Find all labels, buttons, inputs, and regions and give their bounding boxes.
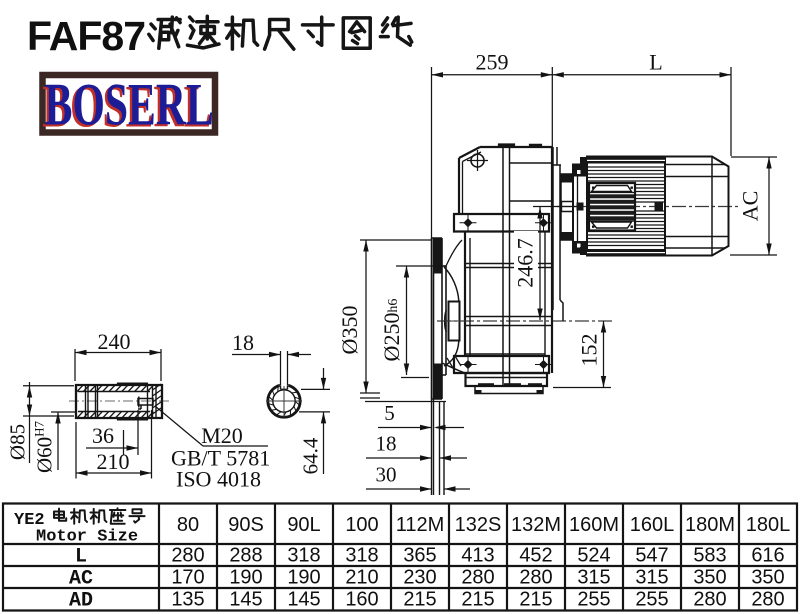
- svg-text:210: 210: [97, 449, 130, 474]
- svg-text:215: 215: [519, 589, 552, 611]
- svg-text:452: 452: [519, 545, 552, 567]
- svg-text:583: 583: [693, 545, 726, 567]
- svg-text:288: 288: [229, 545, 262, 567]
- svg-text:100: 100: [345, 514, 378, 536]
- svg-text:280: 280: [171, 545, 204, 567]
- svg-text:M20: M20: [201, 423, 243, 448]
- svg-text:132S: 132S: [455, 514, 502, 536]
- svg-text:30: 30: [376, 463, 397, 487]
- svg-text:210: 210: [345, 567, 378, 589]
- svg-text:616: 616: [751, 545, 784, 567]
- svg-text:112M: 112M: [396, 514, 445, 536]
- svg-text:318: 318: [345, 545, 378, 567]
- svg-text:160: 160: [345, 589, 378, 611]
- svg-text:315: 315: [577, 567, 610, 589]
- svg-text:190: 190: [229, 567, 262, 589]
- svg-text:Ø350: Ø350: [337, 306, 362, 355]
- svg-text:132M: 132M: [511, 514, 561, 536]
- svg-text:190: 190: [287, 567, 320, 589]
- svg-text:180L: 180L: [746, 514, 791, 536]
- svg-text:365: 365: [403, 545, 436, 567]
- svg-text:215: 215: [403, 589, 436, 611]
- svg-text:90L: 90L: [287, 514, 320, 536]
- svg-text:FAF87: FAF87: [27, 13, 145, 59]
- svg-text:64.4: 64.4: [298, 437, 322, 474]
- svg-text:215: 215: [461, 589, 494, 611]
- svg-text:160L: 160L: [630, 514, 675, 536]
- svg-text:18: 18: [376, 432, 397, 456]
- svg-text:AD: AD: [69, 590, 93, 613]
- svg-text:160M: 160M: [569, 514, 619, 536]
- svg-text:BOSERL: BOSERL: [45, 72, 214, 138]
- svg-text:180M: 180M: [685, 514, 735, 536]
- svg-text:18: 18: [232, 330, 254, 355]
- svg-text:145: 145: [287, 589, 320, 611]
- svg-text:5: 5: [384, 401, 395, 425]
- svg-text:350: 350: [693, 567, 726, 589]
- svg-text:318: 318: [287, 545, 320, 567]
- svg-text:255: 255: [577, 589, 610, 611]
- svg-text:315: 315: [635, 567, 668, 589]
- svg-text:L: L: [649, 50, 662, 75]
- svg-text:ISO 4018: ISO 4018: [176, 467, 261, 492]
- svg-text:246.7: 246.7: [513, 238, 538, 288]
- svg-text:135: 135: [171, 589, 204, 611]
- svg-text:L: L: [75, 546, 87, 569]
- svg-text:259: 259: [476, 50, 509, 75]
- svg-text:350: 350: [751, 567, 784, 589]
- svg-text:Ø85: Ø85: [5, 424, 29, 460]
- svg-text:145: 145: [229, 589, 262, 611]
- svg-text:280: 280: [519, 567, 552, 589]
- svg-text:524: 524: [577, 545, 610, 567]
- svg-text:240: 240: [98, 329, 131, 354]
- svg-text:90S: 90S: [228, 514, 264, 536]
- svg-text:547: 547: [635, 545, 668, 567]
- svg-text:170: 170: [171, 567, 204, 589]
- svg-text:152: 152: [577, 334, 602, 367]
- svg-text:413: 413: [461, 545, 494, 567]
- svg-text:AC: AC: [69, 568, 93, 591]
- svg-text:280: 280: [461, 567, 494, 589]
- svg-text:36: 36: [92, 423, 114, 448]
- svg-text:Motor Size: Motor Size: [36, 528, 138, 547]
- svg-text:280: 280: [751, 589, 784, 611]
- svg-text:80: 80: [177, 514, 199, 536]
- svg-text:280: 280: [693, 589, 726, 611]
- svg-text:AC: AC: [738, 191, 763, 222]
- svg-text:230: 230: [403, 567, 436, 589]
- svg-text:255: 255: [635, 589, 668, 611]
